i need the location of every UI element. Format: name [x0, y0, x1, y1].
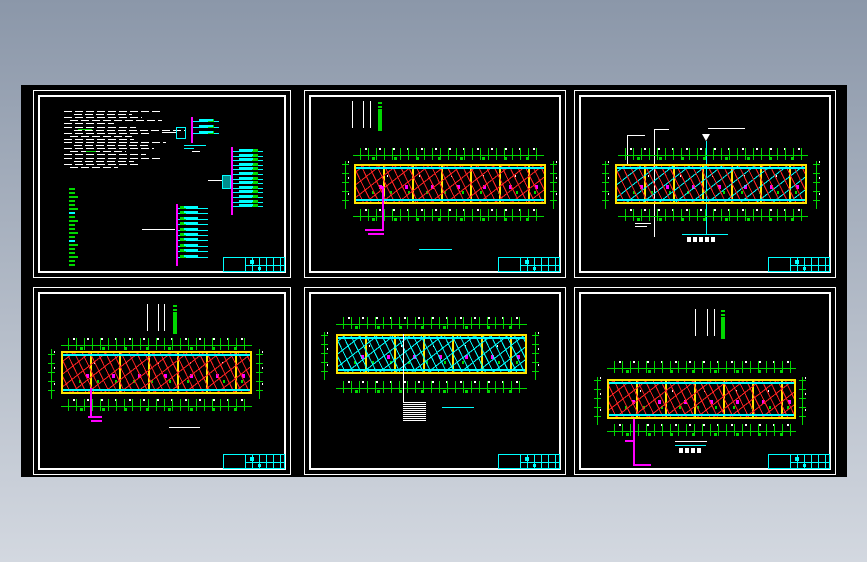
- sheet-floor-plan-5[interactable]: [304, 287, 566, 475]
- dimension-line-top: [618, 148, 808, 160]
- title-block: [498, 257, 560, 272]
- dimension-col-right: [256, 349, 263, 399]
- marker-bar: [370, 101, 371, 128]
- sheet-floor-plan-4[interactable]: [33, 287, 291, 475]
- symbol-legend: [69, 188, 81, 268]
- design-notes-text: [64, 111, 194, 173]
- scale-marker: [695, 309, 727, 341]
- marker-bar: [158, 304, 159, 331]
- feed-arrow: [208, 180, 222, 181]
- marker-bar: [363, 101, 364, 128]
- notes-highlight: [86, 151, 96, 152]
- dimension-line-top: [607, 361, 796, 373]
- scale-marker: [147, 304, 179, 336]
- riser-detail: [192, 151, 200, 152]
- feeder-line: [633, 419, 635, 464]
- feeder-line: [88, 416, 102, 418]
- leader-line: [162, 132, 176, 133]
- marker-green-bar: [173, 312, 177, 334]
- leader-line: [654, 129, 669, 130]
- marker-bar: [714, 309, 715, 336]
- title-block: [223, 257, 285, 272]
- drawing-title-underline: [682, 234, 728, 235]
- feeder-line: [633, 464, 651, 466]
- dimension-col-left: [48, 349, 55, 399]
- title-block: [498, 454, 560, 469]
- notes-highlight: [78, 129, 92, 130]
- dimension-line-bottom: [618, 209, 808, 221]
- dimension-col-left: [342, 161, 349, 209]
- dimension-line-top: [61, 338, 252, 350]
- dimension-col-right: [799, 377, 806, 425]
- dimension-col-left: [321, 332, 328, 380]
- drawing-title-underline: [675, 445, 706, 446]
- drawing-title-underline: [169, 427, 200, 428]
- title-block: [768, 454, 830, 469]
- leader-line: [627, 135, 645, 136]
- marker-bar: [707, 309, 708, 336]
- dimension-line-top: [336, 317, 527, 329]
- drawing-title-text: [679, 448, 703, 453]
- marker-bar: [352, 101, 353, 128]
- sheet-floor-plan-6[interactable]: [574, 287, 836, 475]
- feeder-line: [368, 233, 384, 235]
- marker-bar: [164, 304, 165, 331]
- sheet-floor-plan-3[interactable]: [574, 90, 836, 278]
- dimension-line-bottom: [607, 424, 796, 436]
- stair-mark: [635, 223, 651, 224]
- meter-panel: [222, 175, 231, 189]
- dimension-col-left: [602, 161, 609, 209]
- feeder-line: [90, 388, 92, 418]
- building-plan: [336, 334, 527, 374]
- sheet-floor-plan-2[interactable]: [304, 90, 566, 278]
- section-cut-line: [403, 334, 404, 402]
- drawing-title-underline: [442, 407, 474, 408]
- stair-section-hatch: [403, 402, 426, 422]
- building-plan: [615, 164, 807, 204]
- down-arrow-symbol: [702, 134, 710, 141]
- dimension-col-right: [532, 332, 539, 380]
- dimension-col-right: [813, 161, 820, 209]
- marker-green-bar: [721, 317, 725, 339]
- feed-arrow: [142, 229, 175, 230]
- cad-canvas: [21, 85, 847, 477]
- marker-bar: [147, 304, 148, 331]
- dimension-line-top: [353, 148, 544, 160]
- feeder-line: [91, 420, 102, 422]
- screenshot-root: { "page": {"bg_top":"#8b97a9","bg_bottom…: [0, 0, 867, 562]
- riser-detail: [184, 145, 206, 146]
- feeder-line: [382, 186, 384, 231]
- feeder-line: [365, 229, 384, 231]
- marker-bar: [695, 309, 696, 336]
- drawing-title-text: [687, 237, 717, 242]
- dimension-col-right: [550, 161, 557, 209]
- stair-mark: [635, 226, 647, 227]
- distribution-box: [176, 127, 186, 139]
- scale-marker: [352, 101, 384, 133]
- sheet-notes-and-risers[interactable]: [33, 90, 291, 278]
- feeder-line: [625, 440, 633, 442]
- marker-green-bar: [378, 109, 382, 131]
- building-plan: [607, 379, 796, 419]
- title-block: [223, 454, 285, 469]
- title-block: [768, 257, 830, 272]
- riser-detail: [184, 148, 194, 149]
- dimension-col-left: [594, 377, 601, 425]
- dimension-line-bottom: [336, 381, 527, 393]
- drawing-title-underline: [419, 249, 452, 250]
- drawing-title-underline: [675, 441, 707, 442]
- leader-line: [708, 128, 745, 129]
